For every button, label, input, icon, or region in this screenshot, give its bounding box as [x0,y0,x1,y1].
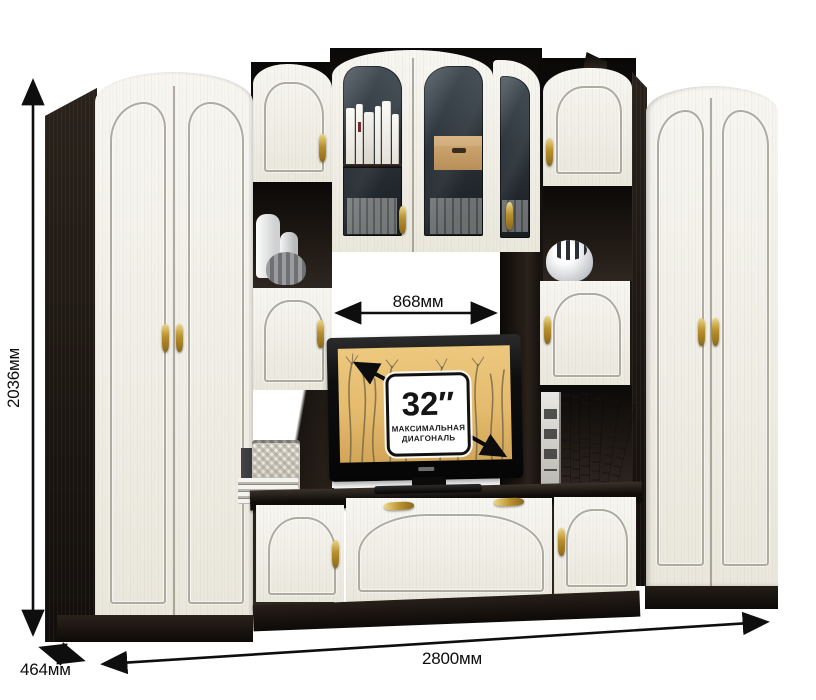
stand-left-door-handle [332,540,339,568]
stand-drawer-panel [358,514,544,592]
stand-left-door-panel [268,517,336,595]
tv-logo [418,467,434,471]
left-side-panel [45,88,97,642]
glass-cabinet-divide [412,58,414,252]
left-wardrobe-left-door-panel [110,102,166,604]
glass-right-handle [506,202,513,230]
left-plinth [57,615,253,642]
lower-books-faint [347,198,397,234]
tv: 32″ МАКСИМАЛЬНАЯ ДИАГОНАЛЬ [327,334,524,482]
stand-drawer-handle-right [494,497,524,506]
diagonal-badge: 32″ МАКСИМАЛЬНАЯ ДИАГОНАЛЬ [385,372,471,457]
left-wardrobe-right-door-panel [188,102,244,604]
right-plinth [645,583,778,609]
ribbed-vase-decor [266,252,306,285]
magazines-decor [541,391,621,488]
right-column-mid-door-handle [544,316,551,344]
height-dimension-label: 2036мм [4,348,24,408]
left-wardrobe-door-gap [173,86,175,618]
books-decor [346,100,400,164]
furniture-product-image: 32″ МАКСИМАЛЬНАЯ ДИАГОНАЛЬ 2036мм 464мм … [0,0,816,700]
right-column-top-door-handle [546,138,553,166]
left-column-mid-door-panel [264,300,324,382]
box-slot [452,148,466,153]
stand-right-door-handle [558,528,565,556]
depth-arrow [42,648,82,660]
left-wardrobe-handle-right [176,324,183,352]
diagonal-caption-line1: МАКСИМАЛЬНАЯ [392,423,466,434]
diagonal-caption-line2: ДИАГОНАЛЬ [402,433,456,443]
right-wardrobe-handle-right [712,318,719,346]
tv-screen: 32″ МАКСИМАЛЬНАЯ ДИАГОНАЛЬ [338,345,512,463]
right-wardrobe-right-door-panel [722,110,769,566]
stand-right-door-panel [566,509,628,587]
left-wardrobe-handle-left [162,324,169,352]
diagonal-value: 32″ [401,386,454,420]
depth-dimension-label: 464мм [20,660,71,680]
right-column-mid-door-panel [553,293,621,377]
right-wardrobe-handle-left [698,318,705,346]
glass-shelf-line [343,164,402,168]
right-column-top-door-panel [556,86,622,174]
niche-width-dimension-label: 868мм [376,292,460,312]
left-column-top-door-handle [319,134,326,162]
striped-vase-decor [546,240,593,282]
width-dimension-label: 2800мм [422,649,482,669]
stand-drawer-handle-left [384,501,414,510]
left-column-mid-door-handle [317,320,324,348]
right-wardrobe-left-door-panel [657,110,704,566]
lower-books-faint-2 [430,198,482,234]
left-column-top-door-panel [264,82,324,172]
cardboard-box-decor [434,136,482,170]
glass-left-handle [399,206,406,234]
